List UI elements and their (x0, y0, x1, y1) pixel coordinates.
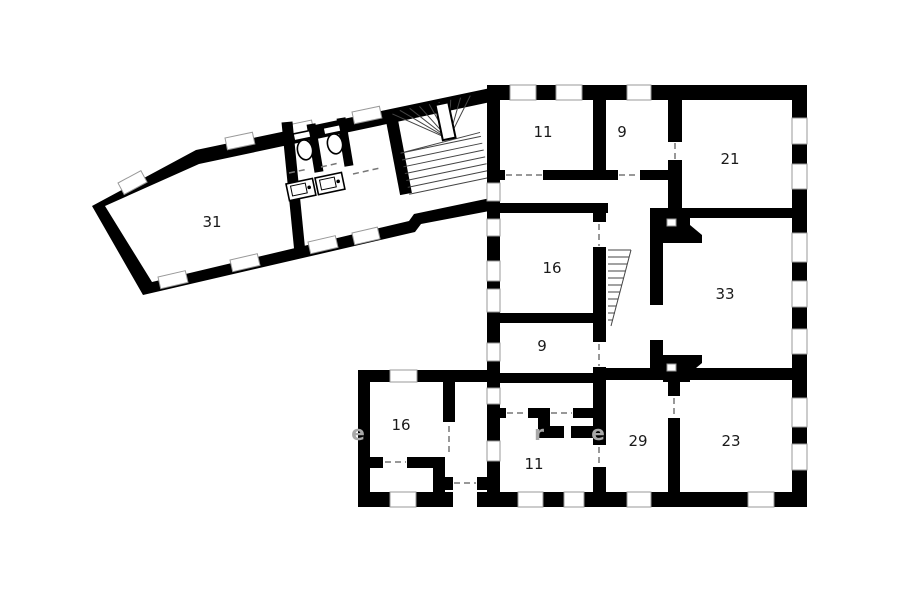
room-label-31: 31 (202, 213, 221, 231)
watermark-fragment: r (534, 421, 544, 445)
room-label-11-top: 11 (533, 123, 552, 141)
room-label-29: 29 (628, 432, 647, 450)
watermark-fragment: e (351, 421, 365, 445)
room-label-33: 33 (715, 285, 734, 303)
room-label-21: 21 (720, 150, 739, 168)
room-label-9-top: 9 (617, 123, 627, 141)
room-label-16-mid: 16 (542, 259, 561, 277)
room-label-9-mid: 9 (537, 337, 547, 355)
lower-left-annex (358, 370, 490, 507)
room-label-11-low: 11 (524, 455, 543, 473)
annex-door-dashes (385, 426, 476, 483)
watermark-fragment: e (591, 421, 605, 445)
chimney-bottom-flue (667, 364, 676, 371)
side-stair (608, 250, 631, 326)
room-label-23: 23 (721, 432, 740, 450)
room-label-16-low: 16 (391, 416, 410, 434)
floor-plan-canvas: 31 11 9 21 16 9 33 16 11 29 23 e r e (0, 0, 900, 604)
floor-plan-page: 31 11 9 21 16 9 33 16 11 29 23 e r e (0, 0, 900, 604)
annex-top-wall (358, 370, 487, 382)
chimney-top-flue (667, 219, 676, 226)
west-wing (92, 86, 500, 295)
